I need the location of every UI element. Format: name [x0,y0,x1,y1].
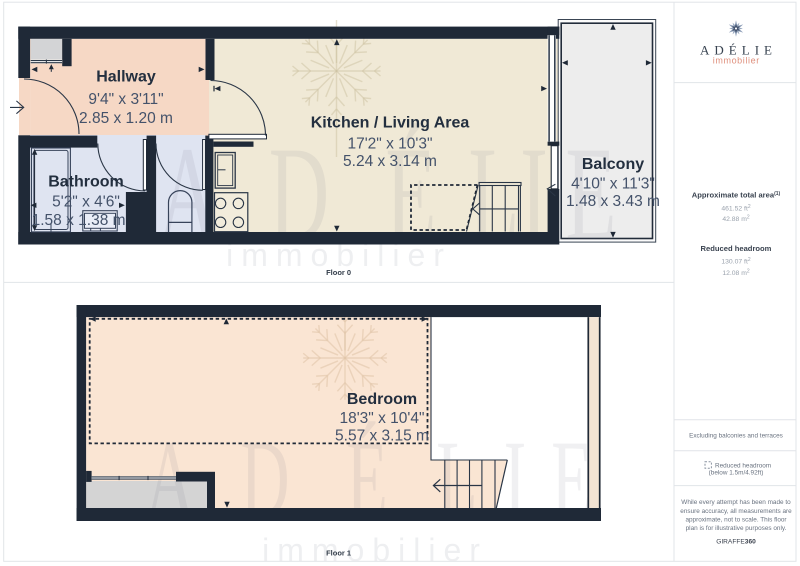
svg-text:GIRAFFE360: GIRAFFE360 [716,539,756,546]
svg-text:130.07 ft2: 130.07 ft2 [721,257,750,266]
svg-text:Hallway: Hallway [96,69,156,86]
svg-text:plan is for illustrative purpo: plan is for illustrative purposes only. [686,525,787,532]
svg-text:42.88 m2: 42.88 m2 [722,215,750,224]
svg-text:Floor 0: Floor 0 [326,268,351,277]
svg-text:immobilier: immobilier [713,56,760,66]
svg-text:461.52 ft2: 461.52 ft2 [721,204,750,213]
svg-text:Reduced headroom: Reduced headroom [701,244,772,253]
svg-text:4'10" x 11'3": 4'10" x 11'3" [571,176,655,193]
svg-text:1.58 x 1.38 m: 1.58 x 1.38 m [32,212,126,229]
svg-text:Kitchen / Living Area: Kitchen / Living Area [311,115,470,132]
svg-text:12.08 m2: 12.08 m2 [722,269,750,278]
svg-text:(below 1.5m/4.92ft): (below 1.5m/4.92ft) [709,470,764,477]
svg-text:1.48 x 3.43 m: 1.48 x 3.43 m [566,193,660,210]
svg-text:17'2" x 10'3": 17'2" x 10'3" [347,136,432,153]
svg-text:Bedroom: Bedroom [347,391,417,408]
svg-text:9'4" x 3'11": 9'4" x 3'11" [88,91,163,108]
svg-text:E: E [551,417,593,540]
svg-text:18'3" x 10'4": 18'3" x 10'4" [339,410,424,427]
svg-text:5.57 x 3.15 m: 5.57 x 3.15 m [335,428,429,445]
svg-text:ensure accuracy, all measureme: ensure accuracy, all measurements are [680,508,792,515]
svg-text:5.24 x 3.14 m: 5.24 x 3.14 m [343,153,437,170]
svg-text:5'2" x 4'6": 5'2" x 4'6" [52,194,120,211]
svg-text:Bathroom: Bathroom [48,173,124,190]
svg-text:I: I [504,417,527,540]
svg-text:D: D [240,417,289,540]
svg-text:While every attempt has been m: While every attempt has been made to [681,499,791,506]
svg-text:2.85 x 1.20 m: 2.85 x 1.20 m [79,110,173,127]
svg-text:approximate, not to scale. Thi: approximate, not to scale. This floor [685,517,787,524]
svg-text:I: I [520,120,548,269]
svg-text:Approximate total area(1): Approximate total area(1) [692,191,781,200]
svg-text:Balcony: Balcony [582,156,644,173]
svg-text:Reduced headroom: Reduced headroom [715,463,771,470]
svg-text:Excluding balconies and terrac: Excluding balconies and terraces [689,433,783,440]
svg-text:Floor 1: Floor 1 [326,549,351,558]
